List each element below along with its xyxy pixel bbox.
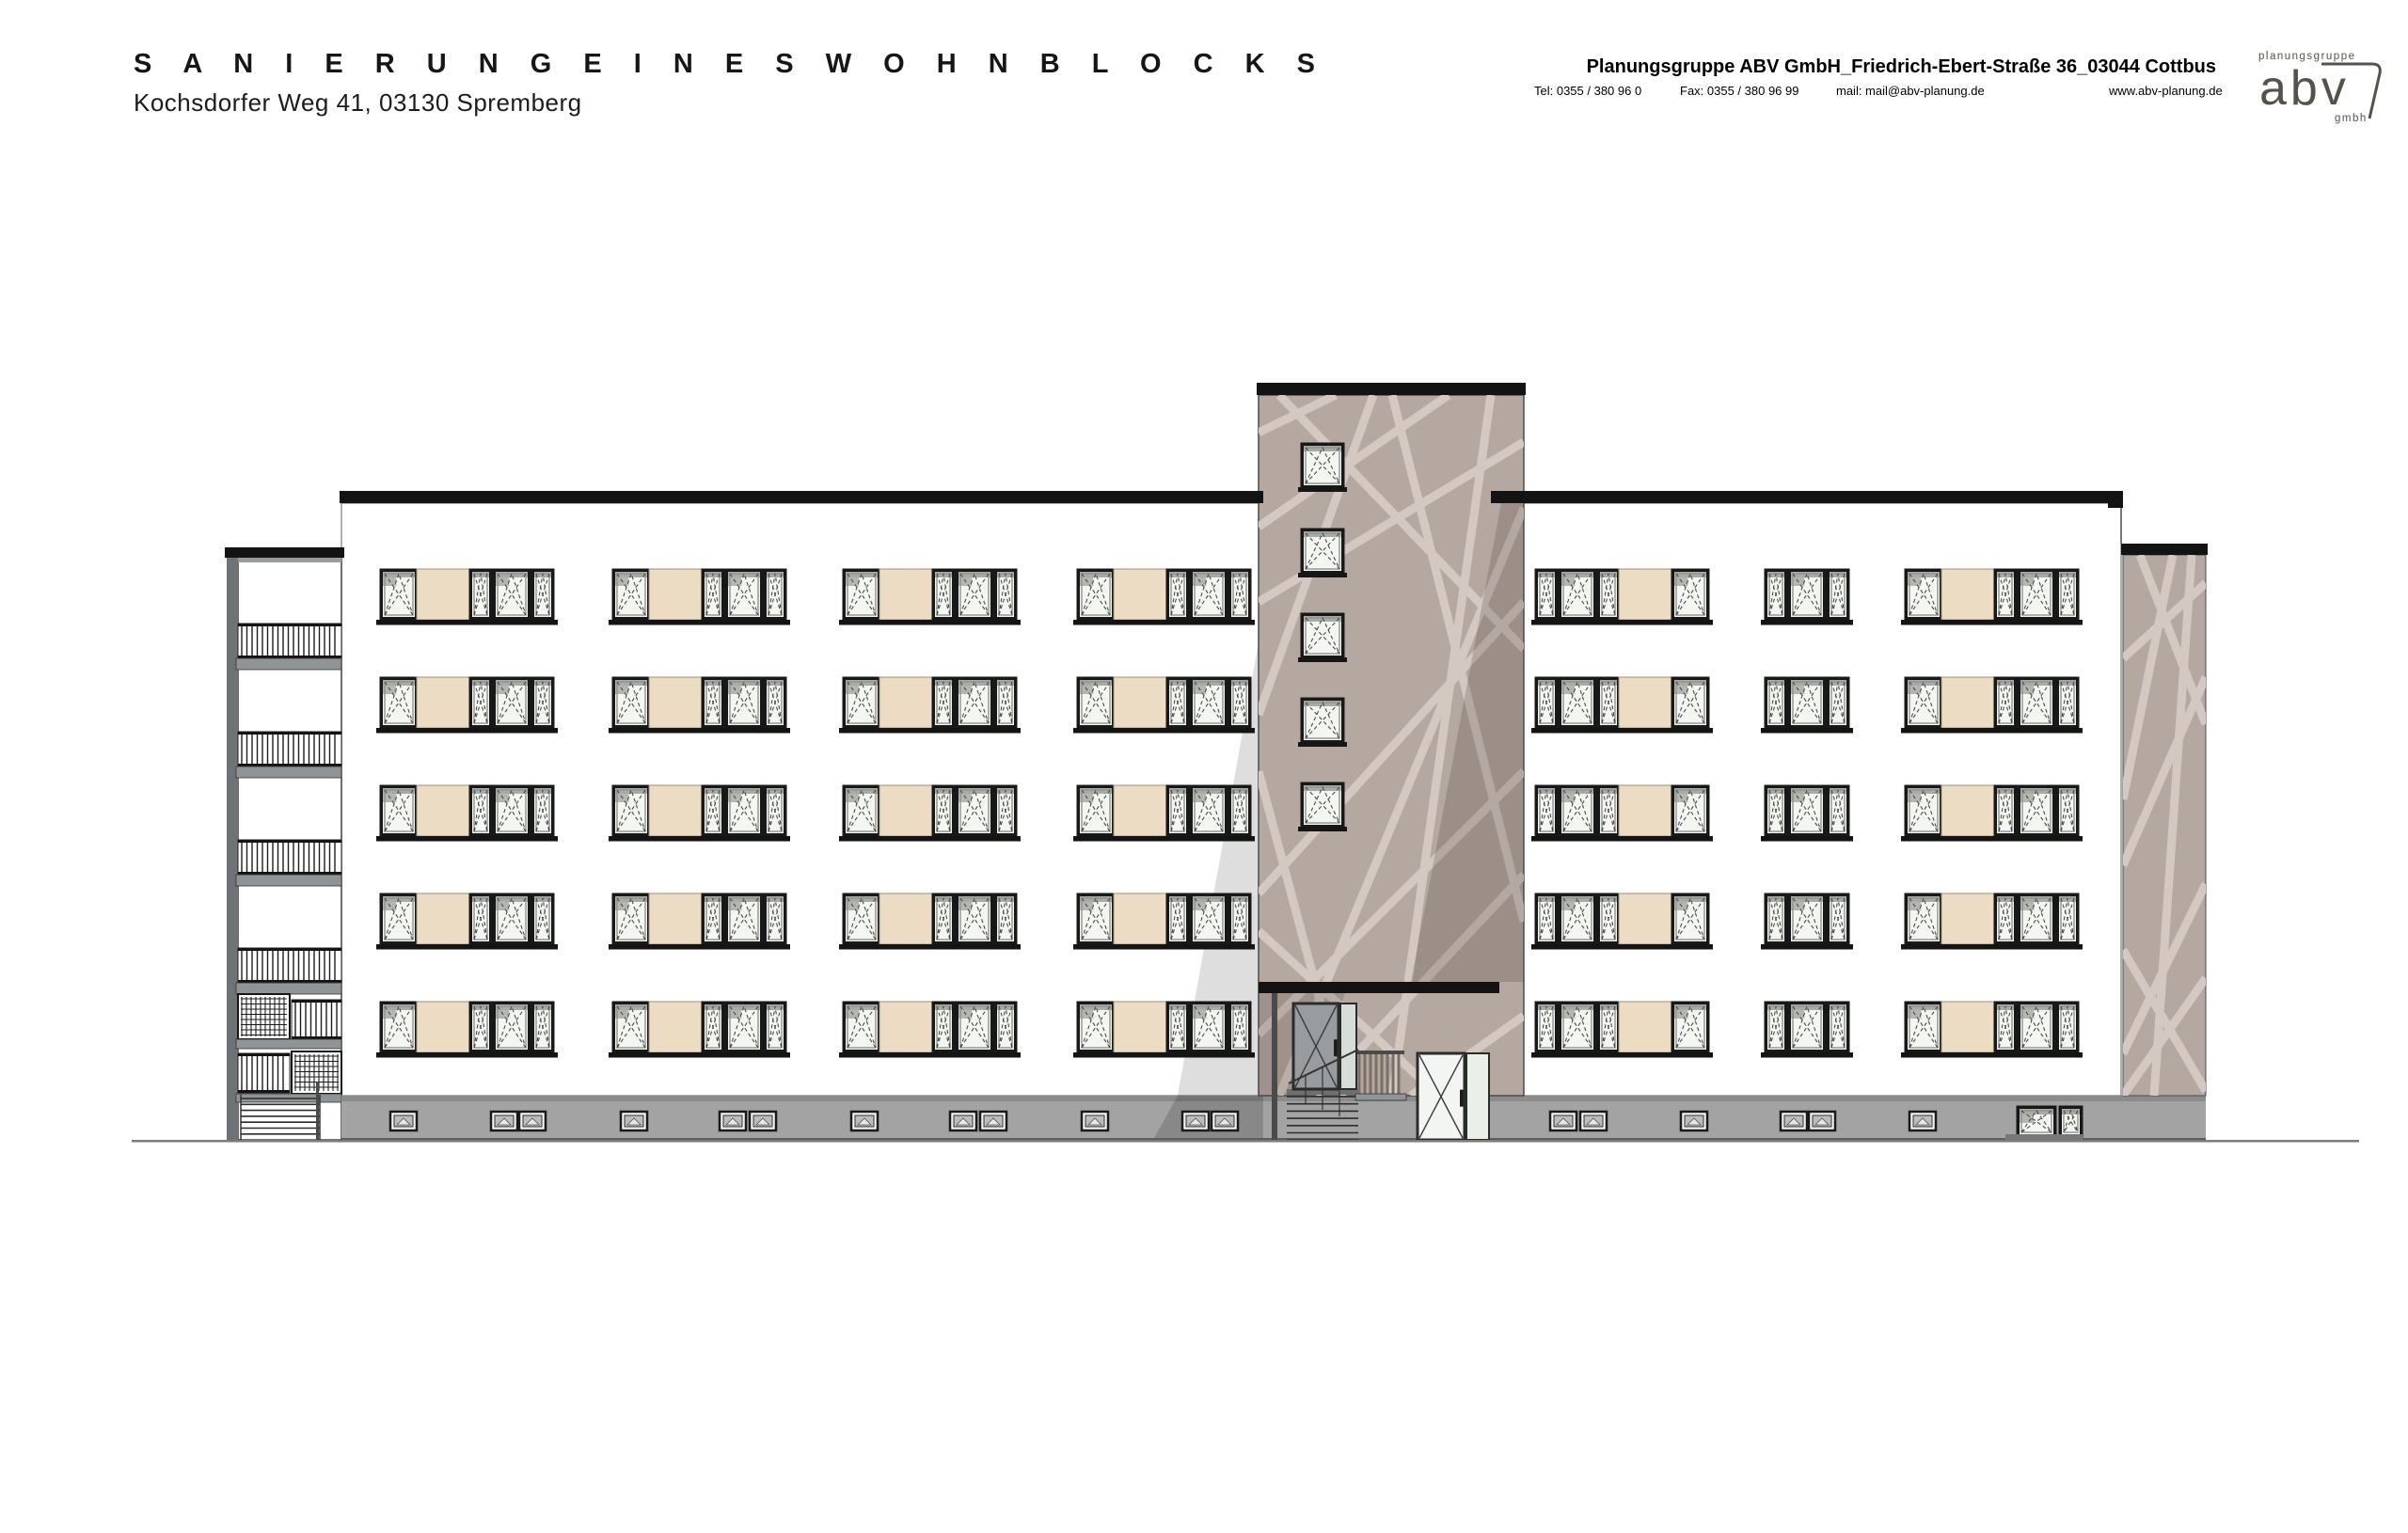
- window: [1788, 677, 1827, 729]
- window: [531, 785, 555, 837]
- window: [932, 893, 956, 945]
- window: [956, 569, 994, 621]
- window: [1190, 785, 1228, 837]
- window: [1535, 1002, 1559, 1053]
- basement-window: [950, 1112, 976, 1130]
- window: [956, 1002, 994, 1053]
- window: [1228, 1002, 1252, 1053]
- window: [1788, 893, 1827, 945]
- window: [493, 569, 531, 621]
- window: [1166, 677, 1190, 729]
- window: [1190, 893, 1228, 945]
- window: [1190, 1002, 1228, 1053]
- window: [764, 893, 787, 945]
- window: [1166, 1002, 1190, 1053]
- basement-window: [621, 1112, 647, 1130]
- window: [1788, 1002, 1827, 1053]
- window: [1559, 569, 1597, 621]
- window: [1994, 1002, 2018, 1053]
- window: [843, 569, 881, 621]
- window: [2017, 1106, 2057, 1138]
- window: [764, 785, 787, 837]
- window: [1788, 785, 1827, 837]
- window: [1228, 893, 1252, 945]
- window: [764, 1002, 787, 1053]
- elevation-drawing: [0, 0, 2408, 1533]
- window: [531, 1002, 555, 1053]
- window: [1994, 677, 2018, 729]
- window: [994, 1002, 1018, 1053]
- window: [1535, 785, 1559, 837]
- window: [1190, 569, 1228, 621]
- window: [493, 785, 531, 837]
- window: [2059, 1106, 2083, 1138]
- basement-window: [1182, 1112, 1209, 1130]
- window: [1905, 785, 1943, 837]
- window: [380, 677, 419, 729]
- window: [469, 1002, 493, 1053]
- window: [956, 785, 994, 837]
- window: [612, 785, 651, 837]
- window: [469, 569, 493, 621]
- window: [932, 785, 956, 837]
- window: [2056, 893, 2080, 945]
- window: [725, 677, 764, 729]
- window: [725, 1002, 764, 1053]
- window: [702, 677, 725, 729]
- window: [1166, 785, 1190, 837]
- drawing-sheet: S A N I E R U N G E I N E S W O H N B L …: [0, 0, 2408, 1533]
- basement-window: [720, 1112, 746, 1130]
- window: [612, 677, 651, 729]
- window: [469, 785, 493, 837]
- window: [1905, 677, 1943, 729]
- window: [469, 893, 493, 945]
- window: [956, 677, 994, 729]
- basement-window: [851, 1112, 878, 1130]
- window: [1671, 677, 1710, 729]
- window: [612, 1002, 651, 1053]
- window: [380, 1002, 419, 1053]
- window: [493, 1002, 531, 1053]
- window: [1765, 569, 1788, 621]
- window: [764, 569, 787, 621]
- window: [702, 893, 725, 945]
- left-stair-tower: [225, 547, 344, 1140]
- basement-window: [390, 1112, 417, 1130]
- window: [1597, 1002, 1621, 1053]
- window: [1671, 569, 1710, 621]
- window: [1166, 569, 1190, 621]
- window: [469, 677, 493, 729]
- window: [725, 569, 764, 621]
- window: [1597, 893, 1621, 945]
- window: [1671, 1002, 1710, 1053]
- basement-window: [1550, 1112, 1576, 1130]
- window: [994, 677, 1018, 729]
- window: [1301, 698, 1345, 744]
- window: [1535, 893, 1559, 945]
- window: [1827, 677, 1850, 729]
- basement-window: [1909, 1112, 1936, 1130]
- window: [2018, 569, 2056, 621]
- window: [1077, 785, 1116, 837]
- window: [493, 677, 531, 729]
- window: [843, 1002, 881, 1053]
- window: [2056, 1002, 2080, 1053]
- window: [1301, 529, 1345, 575]
- basement-window: [750, 1112, 776, 1130]
- window: [1597, 569, 1621, 621]
- window: [702, 1002, 725, 1053]
- window: [1077, 893, 1116, 945]
- window: [2056, 785, 2080, 837]
- window: [764, 677, 787, 729]
- window: [1905, 893, 1943, 945]
- window: [932, 1002, 956, 1053]
- window: [702, 569, 725, 621]
- window: [1597, 785, 1621, 837]
- basement-window: [1809, 1112, 1835, 1130]
- window: [2056, 677, 2080, 729]
- window: [1905, 1002, 1943, 1053]
- window: [380, 785, 419, 837]
- window: [1827, 893, 1850, 945]
- window: [843, 893, 881, 945]
- window: [1671, 785, 1710, 837]
- window: [725, 785, 764, 837]
- window: [2018, 1002, 2056, 1053]
- right-end-panel: [2121, 503, 2208, 1096]
- window: [1228, 785, 1252, 837]
- window: [531, 677, 555, 729]
- window: [1827, 569, 1850, 621]
- window: [1788, 569, 1827, 621]
- window: [2018, 893, 2056, 945]
- basement-window: [1212, 1112, 1238, 1130]
- window: [1077, 677, 1116, 729]
- window: [843, 677, 881, 729]
- window: [1559, 1002, 1597, 1053]
- window: [994, 785, 1018, 837]
- window: [1597, 677, 1621, 729]
- basement-window: [1781, 1112, 1807, 1130]
- window: [1559, 677, 1597, 729]
- window: [725, 893, 764, 945]
- basement-window: [1580, 1112, 1607, 1130]
- window: [994, 569, 1018, 621]
- window: [2056, 569, 2080, 621]
- window: [1765, 1002, 1788, 1053]
- window: [1228, 569, 1252, 621]
- window: [1905, 569, 1943, 621]
- window: [932, 569, 956, 621]
- window: [1559, 893, 1597, 945]
- window: [1301, 613, 1345, 659]
- window: [1765, 893, 1788, 945]
- window: [2018, 677, 2056, 729]
- basement-window: [491, 1112, 517, 1130]
- window: [994, 893, 1018, 945]
- window: [1077, 569, 1116, 621]
- window: [380, 893, 419, 945]
- basement-window: [980, 1112, 1006, 1130]
- window: [531, 569, 555, 621]
- window: [531, 893, 555, 945]
- window: [380, 569, 419, 621]
- window: [1765, 677, 1788, 729]
- window: [1535, 677, 1559, 729]
- window: [843, 785, 881, 837]
- window: [1827, 785, 1850, 837]
- window: [1671, 893, 1710, 945]
- window: [1166, 893, 1190, 945]
- window: [612, 893, 651, 945]
- window: [1535, 569, 1559, 621]
- basement-window: [1681, 1112, 1707, 1130]
- window: [1559, 785, 1597, 837]
- window: [1994, 569, 2018, 621]
- window: [1301, 443, 1345, 489]
- window: [1190, 677, 1228, 729]
- window: [1077, 1002, 1116, 1053]
- ground-line: [132, 1140, 2359, 1143]
- window: [1827, 1002, 1850, 1053]
- window: [1994, 785, 2018, 837]
- window: [932, 677, 956, 729]
- window: [1301, 782, 1345, 829]
- entrance-door-2: [1418, 1053, 1489, 1140]
- window: [612, 569, 651, 621]
- window: [956, 893, 994, 945]
- basement-window: [1082, 1112, 1108, 1130]
- window: [1994, 893, 2018, 945]
- window: [1765, 785, 1788, 837]
- window: [1228, 677, 1252, 729]
- window: [702, 785, 725, 837]
- window: [493, 893, 531, 945]
- basement-window: [519, 1112, 546, 1130]
- window: [2018, 785, 2056, 837]
